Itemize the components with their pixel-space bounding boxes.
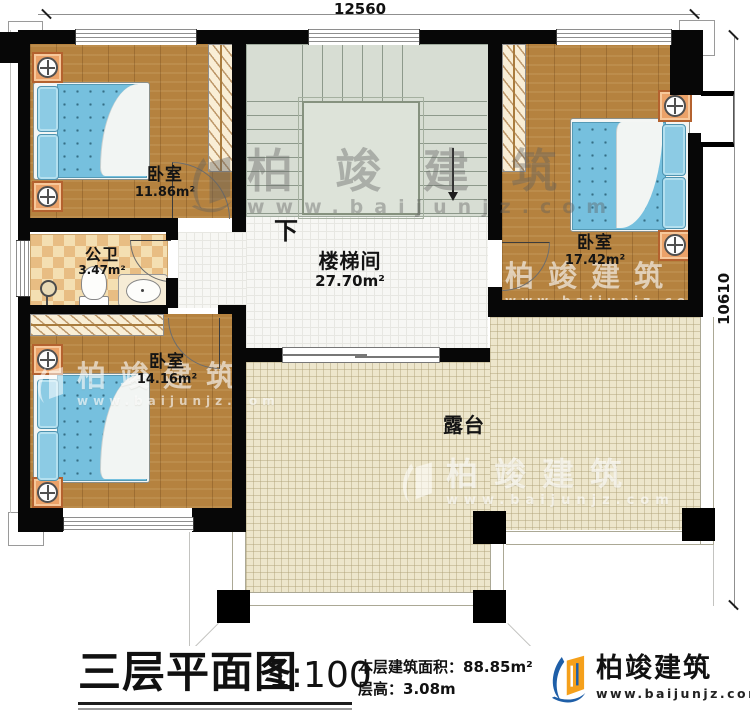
parapet-line [232, 605, 506, 606]
wall [670, 30, 703, 95]
watermark-site: www.baijunjz.com [77, 395, 280, 407]
brand-website: www.baijunjz.com [596, 686, 750, 701]
floor-plan-page: 12560 10610 卧室 11.86m² 卧室 17.42m² 卧室 14.… [0, 0, 750, 718]
height-value: 3.08m [403, 680, 456, 698]
hallway-floor [178, 232, 246, 308]
pillow [37, 86, 59, 132]
wall [195, 30, 308, 44]
watermark-site: www.baijunjz.com [446, 494, 675, 507]
watermark-logo-icon [33, 364, 67, 406]
lamp-icon [37, 186, 58, 207]
room-area: 27.70m² [295, 273, 405, 290]
parapet-line [246, 592, 506, 593]
room-area: 14.16m² [117, 373, 217, 388]
room-label-bedroom-b: 卧室 17.42m² [545, 234, 645, 268]
dimension-line-right [734, 36, 735, 608]
plan-info: 本层建筑面积：88.85m² 层高：3.08m [358, 656, 533, 700]
pillow [662, 124, 686, 176]
column [217, 590, 250, 623]
wall [438, 348, 490, 362]
eave-line [713, 544, 714, 606]
column [473, 590, 506, 623]
sliding-door [282, 347, 440, 363]
watermark-logo-icon [398, 459, 436, 507]
area-value: 88.85m² [463, 658, 533, 676]
window [556, 29, 672, 45]
pillow [662, 177, 686, 229]
stairs-down-label: 下 [268, 218, 304, 246]
shower-drain-icon [40, 280, 57, 297]
watermark-center: 柏竣建筑 www.baijunjz.com [185, 148, 617, 217]
eave-line [189, 532, 190, 651]
column [473, 511, 506, 544]
brand-logo-icon [548, 652, 588, 704]
wall [18, 508, 63, 532]
room-label-bathroom: 公卫 3.47m² [62, 246, 142, 278]
window [63, 517, 194, 531]
wall [18, 295, 30, 508]
room-label-terrace: 露台 [432, 414, 496, 437]
title-underline [78, 702, 352, 705]
dimension-width: 12560 [310, 0, 410, 18]
parapet-line [506, 544, 714, 545]
window [75, 29, 197, 45]
window [308, 29, 420, 45]
wall-notch [0, 32, 18, 63]
wall [418, 30, 556, 44]
watermark-site: www.baijunjz.com [247, 198, 617, 217]
column [682, 508, 715, 541]
wall [232, 348, 282, 362]
pillow [37, 134, 59, 180]
sink-drain-dot [141, 289, 144, 292]
wall [18, 218, 170, 232]
room-name: 公卫 [62, 246, 142, 264]
room-name: 卧室 [545, 234, 645, 254]
brand-logo: 柏竣建筑 www.baijunjz.com [548, 652, 750, 704]
side-window [701, 91, 735, 147]
dimension-height: 10610 [715, 273, 733, 325]
room-name: 卧室 [117, 353, 217, 373]
wardrobe [30, 314, 164, 336]
wall [488, 300, 703, 317]
wall [688, 133, 703, 317]
area-label: 本层建筑面积： [358, 658, 463, 676]
area-line: 本层建筑面积：88.85m² [358, 656, 533, 678]
lamp-icon [37, 57, 58, 78]
room-name: 露台 [432, 414, 496, 437]
room-area: 17.42m² [545, 254, 645, 269]
wall [232, 305, 246, 532]
wall [18, 30, 30, 240]
wall [166, 218, 178, 240]
room-label-bedroom-c: 卧室 14.16m² [117, 353, 217, 387]
lamp-icon [664, 95, 686, 117]
title-block: 三层平面图 1:100 本层建筑面积：88.85m² 层高：3.08m 柏竣建筑… [0, 646, 750, 718]
watermark-text: 柏竣建筑 [446, 458, 675, 490]
room-area: 3.47m² [62, 264, 142, 278]
brand-name: 柏竣建筑 [596, 655, 750, 682]
height-line: 层高：3.08m [358, 678, 533, 700]
eave-line [10, 30, 11, 513]
room-label-stairwell: 楼梯间 27.70m² [295, 250, 405, 290]
watermark-terrace: 柏竣建筑 www.baijunjz.com [398, 458, 675, 507]
plan-scale: 1:100 [268, 658, 372, 694]
watermark-text: 柏竣建筑 [247, 148, 617, 194]
room-name: 楼梯间 [295, 250, 405, 273]
lamp-icon [664, 234, 686, 256]
plan-title: 三层平面图 [78, 652, 298, 695]
stairs-flight-top [302, 45, 420, 101]
lamp-icon [37, 482, 58, 503]
title-underline-thin [78, 708, 352, 710]
watermark-logo-icon [185, 152, 237, 214]
window [16, 240, 30, 297]
wall [18, 305, 168, 314]
height-label: 层高： [358, 680, 403, 698]
pillow [37, 431, 59, 481]
wall [166, 278, 178, 308]
